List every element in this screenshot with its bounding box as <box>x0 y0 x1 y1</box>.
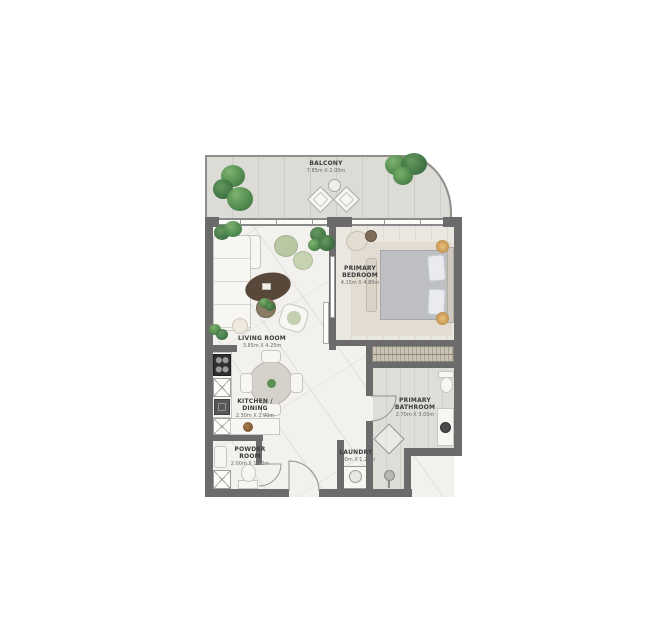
wall-left <box>205 218 213 497</box>
sliding-door <box>323 302 329 344</box>
side-table <box>232 318 248 334</box>
wall-bathroom <box>366 368 373 396</box>
balcony-label: BALCONY 7.85m X 2.00m <box>295 161 357 174</box>
plant-icon <box>308 227 336 255</box>
pillow <box>427 254 446 281</box>
wall <box>366 362 462 368</box>
room-dims: 2.30m X 2.90m <box>224 414 286 420</box>
laundry-label: LAUNDRY 0.90m X 1.20m <box>334 450 378 463</box>
wall-lamp <box>436 312 449 325</box>
bedroom-label: PRIMARY BEDROOM 4.15m X 4.80m <box>332 266 388 286</box>
dining-chair <box>290 373 303 393</box>
wall <box>336 340 462 346</box>
wardrobe <box>372 346 454 362</box>
wall-bottom <box>205 489 289 497</box>
side-table <box>365 230 377 242</box>
room-dims: 7.85m X 2.00m <box>295 169 357 175</box>
counter-decor <box>243 422 253 432</box>
plant-icon <box>383 153 429 189</box>
balcony-table <box>328 179 341 192</box>
plant-icon <box>213 165 257 213</box>
room-name: PRIMARY BEDROOM <box>332 266 388 280</box>
shower-stem <box>388 480 390 488</box>
room-dims: 3.85m X 4.25m <box>232 344 292 350</box>
wall <box>404 448 462 456</box>
room-name: LAUNDRY <box>334 450 378 457</box>
wall-lamp <box>436 240 449 253</box>
plant-icon <box>209 322 229 342</box>
table-centerpiece <box>267 379 276 388</box>
armchair-cushion <box>287 311 301 325</box>
lower-counter <box>230 418 280 435</box>
plant-icon <box>214 221 244 251</box>
powder-room-label: POWDER ROOM 2.00m X 1.50m <box>226 447 274 467</box>
room-dims: 4.15m X 4.80m <box>332 281 388 287</box>
plant-icon <box>258 297 276 313</box>
bed-headboard <box>447 247 454 323</box>
toilet <box>440 377 453 393</box>
room-name: BALCONY <box>295 161 357 168</box>
room-name: KITCHEN / DINING <box>224 399 286 413</box>
bathroom-label: PRIMARY BATHROOM 2.70m X 3.05m <box>387 398 443 418</box>
wall-right <box>454 218 462 456</box>
dining-chair <box>240 373 253 393</box>
room-name: POWDER ROOM <box>226 447 274 461</box>
dining-chair <box>261 350 281 363</box>
wall-powder <box>205 435 263 441</box>
room-dims: 0.90m X 1.20m <box>334 458 378 464</box>
oven-cabinet <box>213 378 231 397</box>
kitchen-label: KITCHEN / DINING 2.30m X 2.90m <box>224 399 286 419</box>
room-dims: 2.70m X 3.05m <box>387 413 443 419</box>
base-cabinet <box>213 470 231 489</box>
floor-plan: BALCONY 7.85m X 2.00m <box>0 0 659 640</box>
room-name: PRIMARY BATHROOM <box>387 398 443 412</box>
living-room-label: LIVING ROOM 3.85m X 4.25m <box>232 336 292 349</box>
cooktop <box>213 354 231 376</box>
coffee-table-book <box>262 283 271 290</box>
room-name: LIVING ROOM <box>232 336 292 343</box>
washer-drum <box>349 470 362 483</box>
vessel-basin <box>440 422 451 433</box>
base-cabinet <box>213 418 231 435</box>
room-dims: 2.00m X 1.50m <box>226 462 274 468</box>
